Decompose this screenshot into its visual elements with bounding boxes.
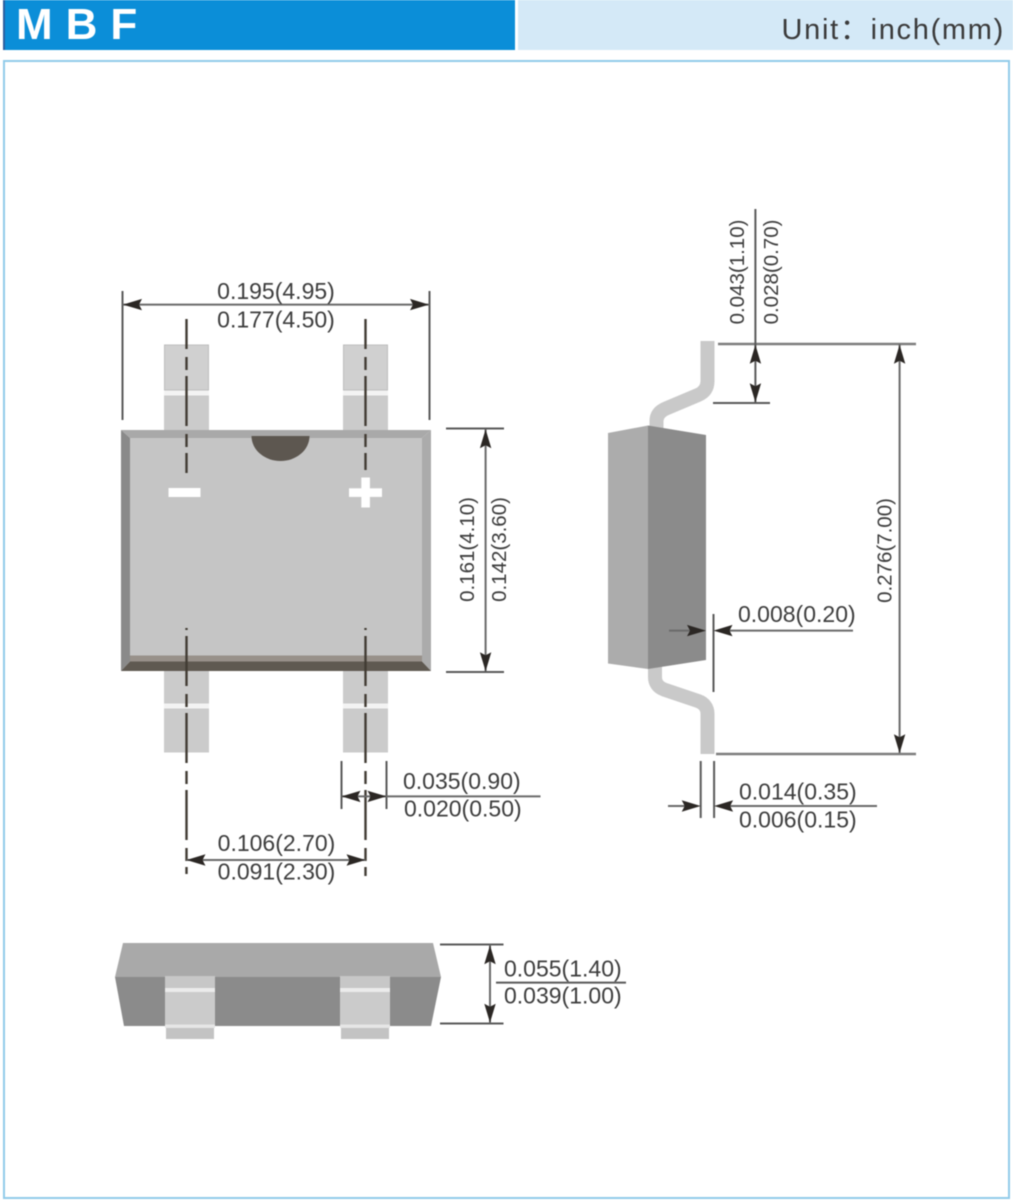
svg-text:0.055(1.40): 0.055(1.40) [504,956,622,982]
svg-text:0.008(0.20): 0.008(0.20) [738,601,856,627]
svg-text:0.177(4.50): 0.177(4.50) [217,307,335,333]
svg-text:0.142(3.60): 0.142(3.60) [488,497,511,602]
svg-text:0.091(2.30): 0.091(2.30) [218,859,336,885]
svg-text:0.276(7.00): 0.276(7.00) [874,498,897,603]
svg-text:0.106(2.70): 0.106(2.70) [218,830,336,856]
svg-text:0.006(0.15): 0.006(0.15) [739,807,857,833]
svg-text:0.035(0.90): 0.035(0.90) [403,768,521,794]
svg-text:0.195(4.95): 0.195(4.95) [217,278,335,304]
svg-text:0.014(0.35): 0.014(0.35) [739,779,857,805]
svg-text:0.039(1.00): 0.039(1.00) [504,983,622,1009]
svg-text:0.043(1.10): 0.043(1.10) [726,220,749,325]
svg-text:0.028(0.70): 0.028(0.70) [760,220,783,325]
svg-text:0.161(4.10): 0.161(4.10) [456,497,479,602]
svg-text:0.020(0.50): 0.020(0.50) [404,796,522,822]
